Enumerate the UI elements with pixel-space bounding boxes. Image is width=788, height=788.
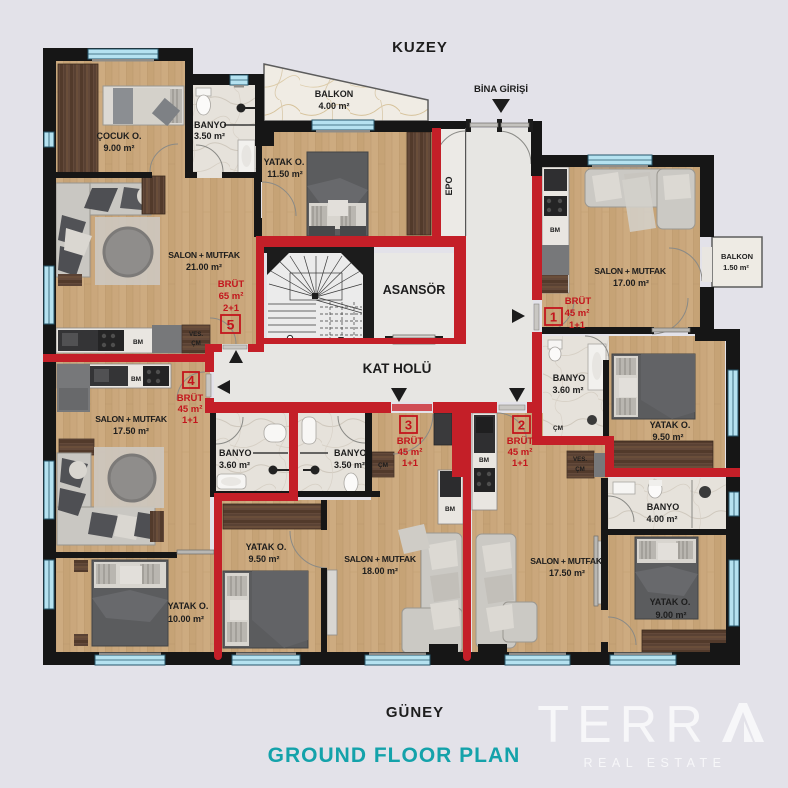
svg-text:2: 2 [518,418,525,433]
svg-text:9.50 m²: 9.50 m² [652,432,683,442]
svg-text:ÇM: ÇM [553,425,563,432]
svg-text:3: 3 [405,418,412,433]
svg-text:BRÜT: BRÜT [397,436,424,447]
svg-text:ÇM: ÇM [575,466,585,473]
svg-text:1+1: 1+1 [402,458,419,469]
svg-text:1+1: 1+1 [182,415,199,426]
svg-text:BANYO: BANYO [647,502,680,512]
svg-text:BRÜT: BRÜT [177,393,204,404]
svg-text:3.60 m²: 3.60 m² [219,460,250,470]
svg-text:18.00 m²: 18.00 m² [362,566,398,576]
svg-text:3.50 m²: 3.50 m² [334,460,365,470]
svg-text:KUZEY: KUZEY [392,39,448,56]
svg-text:BANYO: BANYO [194,120,227,130]
svg-text:VES.: VES. [573,456,587,463]
svg-text:BRÜT: BRÜT [218,279,245,290]
svg-text:5: 5 [227,317,235,333]
svg-text:SALON + MUTFAK: SALON + MUTFAK [594,266,667,276]
svg-text:ASANSÖR: ASANSÖR [383,282,446,297]
svg-text:21.00 m²: 21.00 m² [186,262,222,272]
svg-text:SALON + MUTFAK: SALON + MUTFAK [168,250,241,260]
svg-text:ÇM: ÇM [191,340,201,347]
svg-text:9.00 m²: 9.00 m² [103,143,134,153]
svg-text:EPO: EPO [444,176,454,195]
svg-text:9.00 m²: 9.00 m² [655,610,686,620]
svg-text:BM: BM [133,339,143,346]
svg-text:45 m²: 45 m² [178,404,203,415]
svg-text:BM: BM [445,506,455,513]
svg-text:1+1: 1+1 [512,458,529,469]
svg-text:17.00 m²: 17.00 m² [613,278,649,288]
svg-text:9.50 m²: 9.50 m² [248,554,279,564]
svg-text:BRÜT: BRÜT [565,296,592,307]
svg-text:4.00 m²: 4.00 m² [318,101,349,111]
svg-text:3.60 m²: 3.60 m² [552,385,583,395]
svg-text:BANYO: BANYO [553,373,586,383]
svg-text:65 m²: 65 m² [219,291,244,302]
svg-text:BALKON: BALKON [721,252,753,261]
svg-text:VES.: VES. [189,331,203,338]
svg-text:SALON + MUTFAK: SALON + MUTFAK [344,554,417,564]
svg-text:10.00 m²: 10.00 m² [168,614,204,624]
svg-text:3.50 m²: 3.50 m² [194,131,225,141]
svg-text:REAL ESTATE: REAL ESTATE [584,756,727,770]
svg-text:BRÜT: BRÜT [507,436,534,447]
svg-text:YATAK O.: YATAK O. [650,597,691,607]
svg-text:BİNA GİRİŞİ: BİNA GİRİŞİ [474,84,528,95]
svg-text:4: 4 [187,373,195,388]
svg-text:GROUND FLOOR PLAN: GROUND FLOOR PLAN [268,744,521,767]
svg-text:1: 1 [550,310,557,325]
svg-text:45 m²: 45 m² [565,308,590,319]
svg-text:BANYO: BANYO [219,448,252,458]
svg-text:1.50 m²: 1.50 m² [723,263,749,272]
svg-text:ÇOCUK O.: ÇOCUK O. [97,131,142,141]
svg-text:SALON + MUTFAK: SALON + MUTFAK [530,556,603,566]
svg-text:YATAK O.: YATAK O. [246,542,287,552]
svg-text:BALKON: BALKON [315,89,354,99]
svg-text:SALON + MUTFAK: SALON + MUTFAK [95,414,168,424]
svg-text:BANYO: BANYO [334,448,367,458]
svg-text:YATAK O.: YATAK O. [168,601,209,611]
svg-text:KAT HOLÜ: KAT HOLÜ [363,361,432,376]
svg-text:17.50 m²: 17.50 m² [113,426,149,436]
svg-text:YATAK O.: YATAK O. [264,157,305,167]
svg-text:17.50 m²: 17.50 m² [549,568,585,578]
svg-text:TERR: TERR [537,696,711,754]
svg-text:2+1: 2+1 [223,303,240,314]
svg-text:ÇM: ÇM [378,462,388,469]
svg-text:GÜNEY: GÜNEY [386,704,444,721]
svg-text:1+1: 1+1 [569,320,586,331]
svg-text:11.50 m²: 11.50 m² [267,169,303,179]
svg-text:YATAK O.: YATAK O. [650,420,691,430]
svg-text:BM: BM [479,457,489,464]
svg-text:45 m²: 45 m² [508,447,533,458]
svg-text:4.00 m²: 4.00 m² [646,514,677,524]
svg-text:BM: BM [131,376,141,383]
svg-text:45 m²: 45 m² [398,447,423,458]
svg-text:BM: BM [550,227,560,234]
